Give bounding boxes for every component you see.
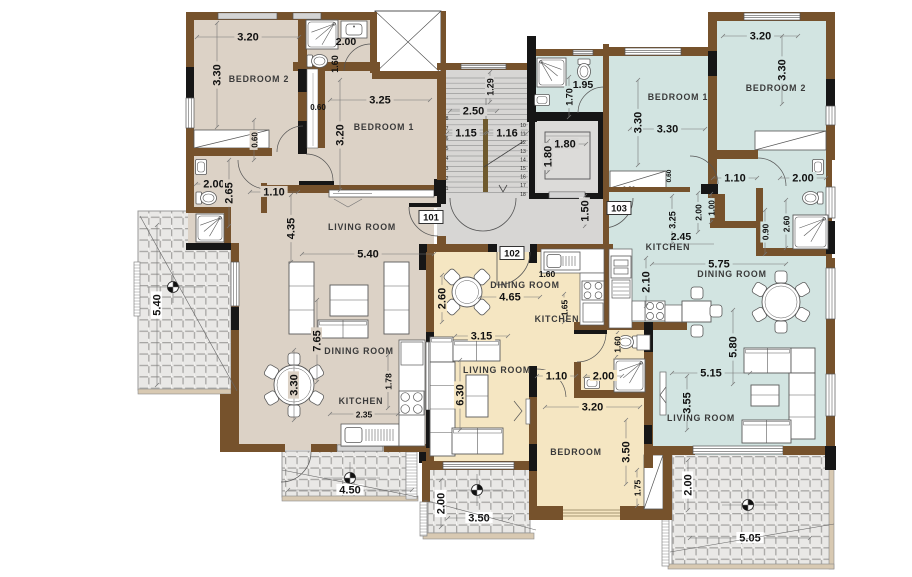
svg-text:1.70: 1.70 bbox=[565, 88, 575, 106]
svg-text:12: 12 bbox=[520, 140, 526, 146]
svg-text:1.50: 1.50 bbox=[580, 200, 592, 221]
svg-text:2.50: 2.50 bbox=[463, 106, 484, 118]
svg-text:10: 10 bbox=[520, 123, 526, 129]
svg-text:3.15: 3.15 bbox=[471, 331, 492, 343]
svg-text:1.80: 1.80 bbox=[554, 139, 575, 151]
svg-text:4.35: 4.35 bbox=[286, 218, 298, 239]
svg-text:LIVING ROOM: LIVING ROOM bbox=[667, 413, 735, 423]
svg-text:BEDROOM 1: BEDROOM 1 bbox=[648, 92, 708, 102]
svg-text:3.20: 3.20 bbox=[335, 124, 347, 145]
svg-text:1.95: 1.95 bbox=[573, 79, 594, 91]
svg-text:DINING ROOM: DINING ROOM bbox=[324, 346, 393, 356]
svg-text:BEDROOM 2: BEDROOM 2 bbox=[746, 83, 806, 93]
svg-text:1.75: 1.75 bbox=[633, 479, 643, 496]
svg-text:14: 14 bbox=[520, 157, 526, 163]
svg-text:DINING ROOM: DINING ROOM bbox=[490, 280, 559, 290]
svg-text:3.30: 3.30 bbox=[289, 374, 301, 395]
svg-text:2.00: 2.00 bbox=[203, 179, 224, 191]
svg-text:0.90: 0.90 bbox=[761, 223, 771, 240]
svg-text:2: 2 bbox=[446, 176, 449, 182]
svg-text:8: 8 bbox=[446, 116, 449, 122]
svg-text:BEDROOM: BEDROOM bbox=[550, 447, 602, 457]
svg-text:3.30: 3.30 bbox=[777, 59, 789, 80]
svg-text:0.60: 0.60 bbox=[666, 169, 673, 182]
svg-text:101: 101 bbox=[423, 213, 440, 224]
svg-text:DINING ROOM: DINING ROOM bbox=[697, 269, 766, 279]
svg-text:15: 15 bbox=[520, 166, 526, 172]
svg-text:102: 102 bbox=[504, 249, 520, 260]
svg-text:4: 4 bbox=[446, 156, 449, 162]
svg-text:3.50: 3.50 bbox=[468, 513, 489, 525]
svg-text:18: 18 bbox=[520, 192, 526, 198]
svg-text:3.20: 3.20 bbox=[582, 402, 603, 414]
svg-text:2.35: 2.35 bbox=[356, 410, 373, 420]
svg-text:3.25: 3.25 bbox=[369, 95, 390, 107]
svg-text:1.60: 1.60 bbox=[539, 269, 556, 279]
svg-text:2.65: 2.65 bbox=[224, 182, 236, 203]
svg-text:6.30: 6.30 bbox=[455, 384, 467, 405]
svg-text:LIVING ROOM: LIVING ROOM bbox=[463, 365, 531, 375]
svg-text:BEDROOM 1: BEDROOM 1 bbox=[354, 122, 414, 132]
svg-text:KITCHEN: KITCHEN bbox=[535, 314, 580, 324]
svg-text:1.10: 1.10 bbox=[546, 371, 567, 383]
svg-text:KITCHEN: KITCHEN bbox=[339, 396, 384, 406]
svg-text:2.00: 2.00 bbox=[694, 204, 704, 221]
svg-text:17: 17 bbox=[520, 183, 526, 189]
svg-text:5.40: 5.40 bbox=[152, 294, 164, 315]
svg-text:2.60: 2.60 bbox=[437, 288, 449, 309]
svg-text:3.30: 3.30 bbox=[212, 64, 224, 85]
svg-text:1.10: 1.10 bbox=[724, 173, 745, 185]
svg-text:3.20: 3.20 bbox=[237, 32, 258, 44]
svg-text:3: 3 bbox=[446, 166, 449, 172]
svg-text:5.80: 5.80 bbox=[728, 336, 740, 357]
svg-text:16: 16 bbox=[520, 175, 526, 181]
svg-text:0.60: 0.60 bbox=[251, 132, 260, 148]
svg-text:2.00: 2.00 bbox=[336, 36, 357, 48]
svg-text:4.65: 4.65 bbox=[499, 292, 520, 304]
svg-text:1.00: 1.00 bbox=[708, 200, 717, 216]
svg-text:1.78: 1.78 bbox=[384, 373, 394, 390]
svg-text:1.29: 1.29 bbox=[486, 78, 496, 96]
svg-text:3.55: 3.55 bbox=[682, 392, 694, 413]
svg-text:2.00: 2.00 bbox=[792, 173, 813, 185]
svg-text:6: 6 bbox=[446, 136, 449, 142]
svg-text:1.60: 1.60 bbox=[613, 336, 623, 353]
svg-text:4.50: 4.50 bbox=[339, 485, 360, 497]
svg-text:13: 13 bbox=[520, 149, 526, 155]
svg-text:2.60: 2.60 bbox=[782, 215, 792, 232]
svg-text:103: 103 bbox=[611, 204, 627, 215]
svg-text:5.40: 5.40 bbox=[357, 249, 378, 261]
svg-text:7: 7 bbox=[446, 126, 449, 132]
svg-text:1: 1 bbox=[446, 186, 449, 192]
svg-text:3.25: 3.25 bbox=[668, 211, 678, 229]
svg-text:KITCHEN: KITCHEN bbox=[646, 242, 691, 252]
svg-text:3.20: 3.20 bbox=[750, 31, 771, 43]
svg-text:1.10: 1.10 bbox=[263, 187, 284, 199]
svg-text:0.60: 0.60 bbox=[310, 103, 326, 112]
svg-text:1.80: 1.80 bbox=[543, 146, 555, 167]
svg-text:1.60: 1.60 bbox=[330, 55, 340, 73]
svg-text:2.10: 2.10 bbox=[641, 271, 653, 292]
svg-text:2.00: 2.00 bbox=[593, 371, 614, 383]
svg-text:1.15: 1.15 bbox=[455, 128, 476, 140]
svg-text:3.50: 3.50 bbox=[621, 441, 633, 462]
svg-text:1.16: 1.16 bbox=[496, 128, 517, 140]
svg-text:3.30: 3.30 bbox=[633, 112, 645, 133]
svg-text:LIVING ROOM: LIVING ROOM bbox=[328, 222, 396, 232]
svg-text:5: 5 bbox=[446, 146, 449, 152]
svg-text:BEDROOM 2: BEDROOM 2 bbox=[229, 74, 289, 84]
svg-text:5.15: 5.15 bbox=[700, 368, 721, 380]
svg-text:2.00: 2.00 bbox=[683, 474, 695, 495]
svg-text:7.65: 7.65 bbox=[312, 330, 324, 351]
svg-text:3.30: 3.30 bbox=[657, 124, 678, 136]
